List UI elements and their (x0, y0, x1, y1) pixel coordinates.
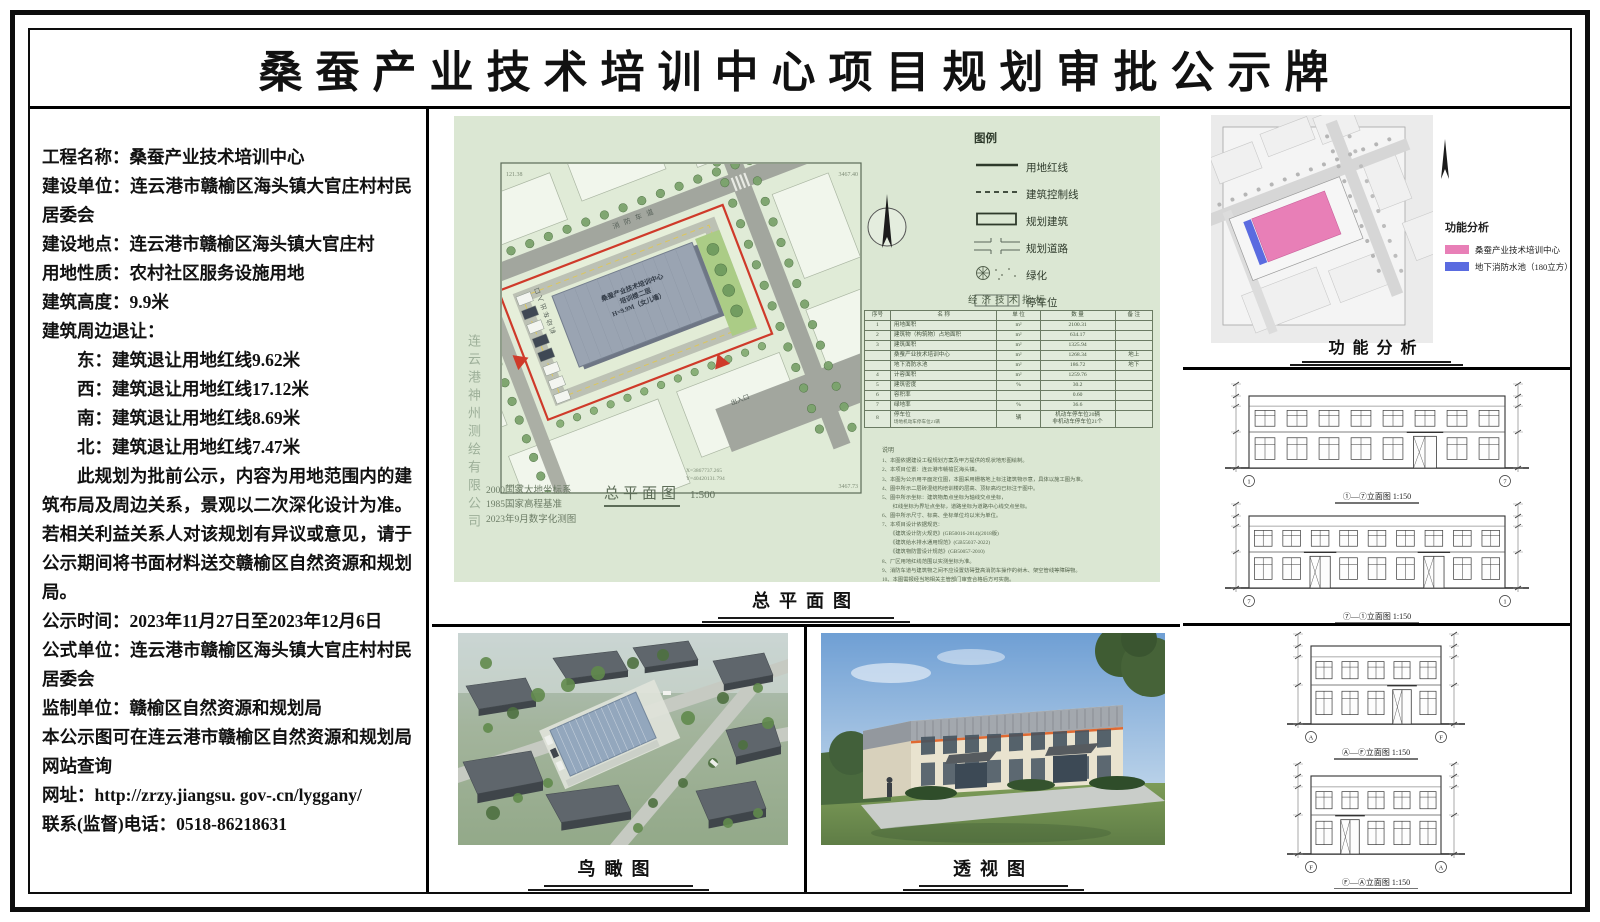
perspective-caption: 透视图 (807, 855, 1180, 887)
notes-header: 说明 (882, 446, 1152, 456)
info-line: 南：建筑退让用地红线8.69米 (42, 404, 412, 433)
notes-line: 1、本图依据建设工程规划方案及甲方提供的现状地形图绘制。 (882, 457, 1152, 466)
legend-header: 图例 (974, 130, 1139, 146)
notes-line: 《建筑物防雷设计规范》(GB50057-2010) (882, 548, 1152, 557)
dashed-line-icon (974, 184, 1026, 205)
table-row: 2建筑物（构筑物）占地面积m²634.17 (865, 330, 1153, 340)
cell-note (1115, 330, 1152, 340)
perspective-panel: 透视图 (807, 627, 1180, 892)
info-line: 建设单位：连云港市赣榆区海头镇大官庄村村民居委会 (42, 172, 412, 230)
info-line: 本公示图可在连云港市赣榆区自然资源和规划局网站查询 (42, 723, 412, 781)
notes-line: 7、本项目设计依据规范： (882, 521, 1152, 530)
project-info-panel: 工程名称：桑蚕产业技术培训中心建设单位：连云港市赣榆区海头镇大官庄村村民居委会建… (30, 109, 429, 892)
indicator-table: 经济技术指标序号名 称单 位数 量备 注1用地面积m²2100.312建筑物（构… (864, 292, 1153, 428)
table-row: 6容积率0.60 (865, 390, 1153, 400)
info-line: 北：建筑退让用地红线7.47米 (42, 433, 412, 462)
cell-unit (997, 390, 1040, 400)
cell-unit: % (997, 380, 1040, 390)
notes-line: 5、图中所示坐标：建筑物角点坐标为轴线交点坐标， (882, 494, 1152, 503)
cell-unit: m² (997, 320, 1040, 330)
legend-item-label: 用地红线 (1026, 160, 1068, 175)
info-line: 网址：http://zrzy.jiangsu. gov-.cn/lyggany/ (42, 781, 412, 810)
svg-text:A: A (1439, 865, 1444, 872)
cell-unit: m² (997, 340, 1040, 350)
info-line: 东：建筑退让用地红线9.62米 (42, 346, 412, 375)
cell-note (1115, 340, 1152, 350)
cell-qty-line: 非机动车停车位21个 (1043, 419, 1113, 426)
table-row: 3建筑面积m²1325.94 (865, 340, 1153, 350)
title-bar: 桑蚕产业技术培训中心项目规划审批公示牌 (30, 30, 1570, 109)
elevation-drawing: F A Ⓕ—Ⓐ立面图 1:150 (1287, 762, 1465, 889)
notes-line: 3、本图为公示用平面定位图，本图采用栅格地上标注建筑物示意，具体以施工图为准。 (882, 476, 1152, 485)
info-line: 建筑高度：9.9米 (42, 288, 412, 317)
corner-coord: 121.38 (506, 172, 523, 178)
fa-color-swatch (1445, 262, 1469, 271)
cell-qty-line: 机动车停车位20辆 (1043, 412, 1113, 419)
cell-name-sub: 场地机动车停车位21辆 (894, 419, 995, 425)
cell-qty: 1259.76 (1040, 370, 1115, 380)
cell-note (1115, 320, 1152, 330)
info-line: 工程名称：桑蚕产业技术培训中心 (42, 143, 412, 172)
cell-no: 3 (865, 340, 891, 350)
solid-line-icon (974, 157, 1026, 178)
rect-icon (974, 211, 1026, 232)
corner-coord: 3467.40 (839, 172, 859, 178)
legend-item: 建筑控制线 (974, 181, 1139, 208)
elevation-panel-side: A F Ⓐ—Ⓕ立面图 1:150 (1183, 626, 1570, 892)
right-column: 功能分析桑蚕产业技术培训中心地下消防水池（180立方） 功能分析 (1183, 109, 1570, 892)
elevation-caption: Ⓐ—Ⓕ立面图 1:150 (1342, 747, 1410, 757)
table-header-cell: 单 位 (997, 311, 1040, 321)
fa-legend-label: 地下消防水池（180立方） (1475, 261, 1570, 273)
cell-qty: 1268.34 (1040, 350, 1115, 360)
info-line: 建筑周边退让： (42, 317, 412, 346)
cell-note (1115, 380, 1152, 390)
cell-name: 建筑物（构筑物）占地面积 (890, 330, 997, 340)
site-plan-inner-caption: 总平面图 1:500 (604, 482, 715, 503)
site-plan-legend: 图例用地红线建筑控制线规划建筑规划道路绿化停车位 (974, 130, 1139, 316)
cell-no (865, 350, 891, 360)
table-row: 4计容面积m²1259.76 (865, 370, 1153, 380)
cell-note: 地下 (1115, 360, 1152, 370)
function-analysis-legend: 功能分析桑蚕产业技术培训中心地下消防水池（180立方） (1445, 219, 1570, 275)
elevation-caption: ①—⑦立面图 1:150 (1343, 491, 1411, 501)
info-line: 用地性质：农村社区服务设施用地 (42, 259, 412, 288)
datum-line: 2000国家大地坐标系 (486, 484, 576, 498)
birdseye-panel: 鸟瞰图 (432, 627, 807, 892)
cell-no: 8 (865, 410, 891, 427)
cell-unit: m² (997, 370, 1040, 380)
datum-line: 1985国家高程基准 (486, 498, 576, 512)
north-needle-icon (1439, 139, 1451, 183)
notes-line: 《建筑设计防火规范》(GB50016-2014)(2018版) (882, 530, 1152, 539)
cell-name: 停车位场地机动车停车位21辆 (890, 410, 997, 427)
corner-coord: 3467.73 (839, 484, 859, 490)
table-header-cell: 数 量 (1040, 311, 1115, 321)
cell-note: 地上 (1115, 350, 1152, 360)
legend-item-label: 建筑控制线 (1026, 187, 1079, 202)
cell-unit: m² (997, 360, 1040, 370)
function-analysis-panel: 功能分析桑蚕产业技术培训中心地下消防水池（180立方） 功能分析 (1183, 109, 1570, 370)
site-plan-panel: 121.38 3467.40 3467.73 101.58 X=3867737.… (432, 109, 1180, 627)
cell-note (1115, 410, 1152, 427)
cell-name: 容积率 (890, 390, 997, 400)
site-plan-caption: 总平面图 (432, 587, 1180, 619)
fa-legend-header: 功能分析 (1445, 219, 1570, 235)
cell-qty: 186.72 (1040, 360, 1115, 370)
cell-unit: m² (997, 330, 1040, 340)
cell-no: 2 (865, 330, 891, 340)
datum-notes: 2000国家大地坐标系 1985国家高程基准 2023年9月数字化测图 (486, 484, 576, 527)
notes-line: 6、图中所示尺寸、标高、坐标单位均以米为单位。 (882, 512, 1152, 521)
perspective-caption-text: 透视图 (919, 855, 1068, 887)
inner-frame: 桑蚕产业技术培训中心项目规划审批公示牌 工程名称：桑蚕产业技术培训中心建设单位：… (28, 28, 1572, 894)
elevation-drawing: 1 7 ①—⑦立面图 1:150 (1225, 382, 1529, 503)
site-plan-caption-text: 总平面图 (718, 587, 894, 619)
cell-name: 用地面积 (890, 320, 997, 330)
info-line: 联系(监督)电话：0518-86218631 (42, 810, 412, 839)
cell-unit: 辆 (997, 410, 1040, 427)
svg-text:F: F (1309, 865, 1313, 872)
info-line: 此规划为批前公示，内容为用地范围内的建筑布局及周边关系，景观以二次深化设计为准。… (42, 462, 412, 607)
function-analysis-caption-text: 功能分析 (1302, 334, 1450, 363)
indicator-table-grid: 序号名 称单 位数 量备 注1用地面积m²2100.312建筑物（构筑物）占地面… (864, 310, 1153, 428)
site-plan-sheet: 121.38 3467.40 3467.73 101.58 X=3867737.… (454, 116, 1160, 582)
plan-notes: 说明1、本图依据建设工程规划方案及甲方提供的现状地形图绘制。2、本项目位置：连云… (882, 446, 1152, 582)
birdseye-image (458, 633, 788, 845)
info-line: 建设地点：连云港市赣榆区海头镇大官庄村 (42, 230, 412, 259)
page-title: 桑蚕产业技术培训中心项目规划审批公示牌 (259, 36, 1342, 100)
green-icon (974, 265, 1026, 286)
elevation-drawing: 7 1 ⑦—①立面图 1:150 (1225, 502, 1529, 623)
table-header-cell: 序号 (865, 311, 891, 321)
table-row: 5建筑密度%30.2 (865, 380, 1153, 390)
legend-item: 规划道路 (974, 235, 1139, 262)
table-row: 7绿地率%36.6 (865, 400, 1153, 410)
cell-name: 桑蚕产业技术培训中心 (890, 350, 997, 360)
info-line: 公式单位：连云港市赣榆区海头镇大官庄村村民居委会 (42, 636, 412, 694)
cell-qty: 0.60 (1040, 390, 1115, 400)
table-header-cell: 名 称 (890, 311, 997, 321)
table-row: 桑蚕产业技术培训中心m²1268.34地上 (865, 350, 1153, 360)
cell-name: 建筑密度 (890, 380, 997, 390)
table-row: 1用地面积m²2100.31 (865, 320, 1153, 330)
cell-no: 5 (865, 380, 891, 390)
cell-qty: 1325.94 (1040, 340, 1115, 350)
cell-qty: 30.2 (1040, 380, 1115, 390)
cell-note (1115, 400, 1152, 410)
table-row: 地下消防水池m²186.72地下 (865, 360, 1153, 370)
elevation-caption: ⑦—①立面图 1:150 (1343, 611, 1411, 621)
notes-line: 10、本图需报经当地相关主管部门审查合格后方可实施。 (882, 576, 1152, 582)
svg-text:7: 7 (1503, 479, 1507, 486)
main-area: 工程名称：桑蚕产业技术培训中心建设单位：连云港市赣榆区海头镇大官庄村村民居委会建… (30, 109, 1570, 892)
cell-no: 4 (865, 370, 891, 380)
notice-board: 桑蚕产业技术培训中心项目规划审批公示牌 工程名称：桑蚕产业技术培训中心建设单位：… (0, 0, 1600, 922)
render-row: 鸟瞰图 透视图 (432, 627, 1180, 892)
fa-legend-item: 桑蚕产业技术培训中心 (1445, 241, 1570, 258)
cell-qty: 2100.31 (1040, 320, 1115, 330)
notes-line: 8、厂区用地红线范围以实测坐标为准。 (882, 558, 1152, 567)
cell-name: 绿地率 (890, 400, 997, 410)
inner-caption-scale: 1:500 (690, 489, 715, 501)
center-column: 121.38 3467.40 3467.73 101.58 X=3867737.… (432, 109, 1180, 892)
svg-text:7: 7 (1247, 599, 1251, 606)
info-line: 西：建筑退让用地红线17.12米 (42, 375, 412, 404)
cell-qty: 36.6 (1040, 400, 1115, 410)
legend-item: 规划建筑 (974, 208, 1139, 235)
fa-color-swatch (1445, 245, 1469, 254)
elevation-drawing: A F Ⓐ—Ⓕ立面图 1:150 (1287, 632, 1465, 759)
indicator-table-title: 经济技术指标 (864, 292, 1153, 306)
table-row: 8停车位场地机动车停车位21辆辆机动车停车位20辆非机动车停车位21个 (865, 410, 1153, 427)
cell-name: 地下消防水池 (890, 360, 997, 370)
cell-note (1115, 370, 1152, 380)
datum-line: 2023年9月数字化测图 (486, 513, 576, 527)
function-analysis-caption: 功能分析 (1183, 334, 1570, 363)
cell-qty: 机动车停车位20辆非机动车停车位21个 (1040, 410, 1115, 427)
function-analysis-drawing (1211, 115, 1433, 343)
notes-line: 《建筑给水排水通用规范》(GB55037-2022) (882, 539, 1152, 548)
notes-line: 9、消防车道与建筑物之间不应设置妨碍登高消防车操作的树木、架空管线等障碍物。 (882, 567, 1152, 576)
cell-note (1115, 390, 1152, 400)
perspective-image (821, 633, 1165, 845)
cell-name: 计容面积 (890, 370, 997, 380)
cell-no: 6 (865, 390, 891, 400)
table-header-cell: 备 注 (1115, 311, 1152, 321)
cell-no (865, 360, 891, 370)
cell-no: 7 (865, 400, 891, 410)
fa-legend-item: 地下消防水池（180立方） (1445, 258, 1570, 275)
svg-text:F: F (1439, 735, 1443, 742)
cell-unit: m² (997, 350, 1040, 360)
cell-no: 1 (865, 320, 891, 330)
surveyor-watermark: 连云港神州测绘有限公司 (464, 334, 483, 532)
cell-unit: % (997, 400, 1040, 410)
svg-text:1: 1 (1247, 479, 1250, 486)
elevation-caption: Ⓕ—Ⓐ立面图 1:150 (1342, 877, 1410, 887)
svg-text:A: A (1309, 735, 1314, 742)
notes-line: 2、本项目位置：连云港市赣榆区海头镇。 (882, 466, 1152, 475)
legend-item-label: 规划道路 (1026, 241, 1068, 256)
elevation-panel-front: 1 7 ①—⑦立面图 1:150 (1183, 370, 1570, 626)
fa-legend-label: 桑蚕产业技术培训中心 (1475, 244, 1560, 256)
info-line: 公示时间：2023年11月27日至2023年12月6日 (42, 607, 412, 636)
cell-name: 建筑面积 (890, 340, 997, 350)
birdseye-caption-text: 鸟瞰图 (544, 855, 693, 887)
svg-text:1: 1 (1503, 599, 1506, 606)
legend-item-label: 绿化 (1026, 268, 1047, 283)
inner-caption-text: 总平面图 (604, 486, 680, 507)
road-icon (974, 238, 1026, 259)
notes-line: 4、图中所示二层砖混结构培训楼的层高、顶标高均已标注于图中。 (882, 485, 1152, 494)
legend-item-label: 规划建筑 (1026, 214, 1068, 229)
legend-item: 绿化 (974, 262, 1139, 289)
birdseye-caption: 鸟瞰图 (432, 855, 804, 887)
notes-line: 红线坐标为界址点坐标，道路坐标为道路中心线交点坐标。 (882, 503, 1152, 512)
cell-qty: 634.17 (1040, 330, 1115, 340)
legend-item: 用地红线 (974, 154, 1139, 181)
coord-label: X=3867737.265 (686, 468, 722, 474)
table-header-row: 序号名 称单 位数 量备 注 (865, 311, 1153, 321)
info-line: 监制单位：赣榆区自然资源和规划局 (42, 694, 412, 723)
